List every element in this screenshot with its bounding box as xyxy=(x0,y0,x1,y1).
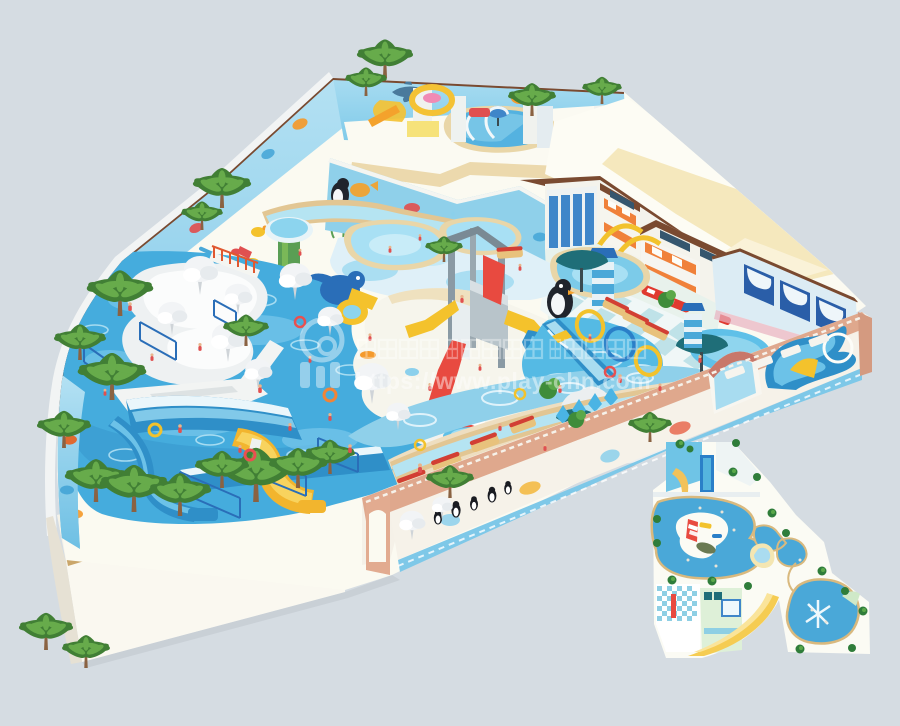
svg-text:https://www.play-chn.com: https://www.play-chn.com xyxy=(355,368,651,394)
